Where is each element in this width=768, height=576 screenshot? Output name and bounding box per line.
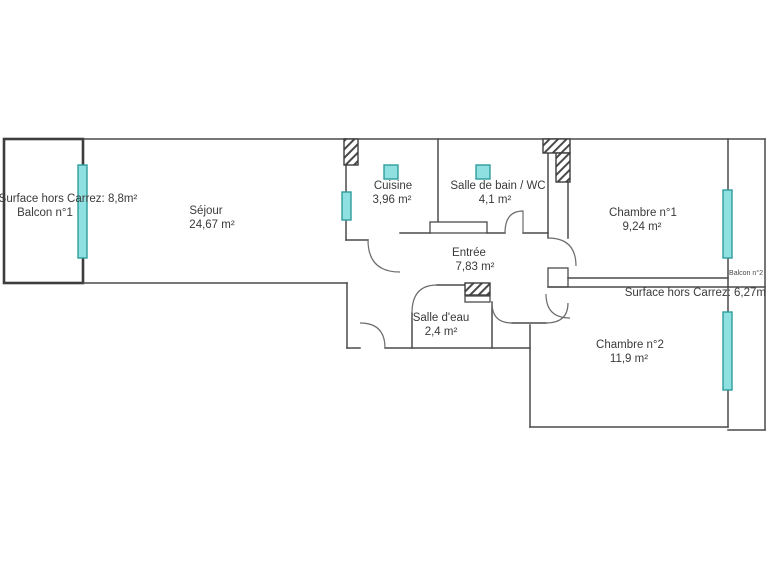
corridor-corner-arc-right: [546, 303, 568, 323]
room-area-entree: 7,83 m²: [456, 261, 495, 273]
room-area-chambre2: 11,9 m²: [610, 353, 648, 365]
duct-hatch-bath-side: [556, 153, 570, 182]
room-label-entree: Entrée: [452, 247, 486, 259]
balcon1-label: Balcon n°1: [17, 207, 73, 219]
room-area-salle-de-bain: 4,1 m²: [479, 194, 512, 206]
room-area-salle-deau: 2,4 m²: [425, 326, 458, 338]
window-chambre2-icon: [723, 312, 732, 390]
window-chambre1-icon: [723, 190, 732, 258]
window-cuisine-icon: [342, 192, 351, 220]
room-area-chambre1: 9,24 m²: [623, 221, 662, 233]
room-label-chambre2: Chambre n°2: [596, 339, 664, 351]
room-area-sejour: 24,67 m²: [189, 219, 235, 231]
balcon2-surface-label: Surface hors Carrez: 6,27m: [625, 287, 766, 299]
room-label-chambre1: Chambre n°1: [609, 207, 677, 219]
balcon1-surface-label: Surface hors Carrez: 8,8m²: [0, 193, 138, 205]
balcon2-label: Balcon n°2: [729, 269, 763, 277]
door-arc-salle-deau: [412, 285, 437, 313]
room-label-sejour: Séjour: [189, 205, 222, 217]
corridor-corner-arc-left: [492, 303, 512, 323]
floor-plan-page: Surface hors Carrez: 8,8m² Balcon n°1 Sé…: [0, 0, 768, 576]
room-label-cuisine: Cuisine: [374, 180, 412, 192]
door-arc-entry: [360, 323, 385, 348]
door-arc-salle-de-bain: [505, 211, 523, 233]
room-label-salle-de-bain: Salle de bain / WC: [450, 180, 545, 192]
floor-plan-canvas: Surface hors Carrez: 8,8m² Balcon n°1 Sé…: [0, 0, 768, 576]
duct-hatch-entree: [465, 283, 490, 295]
window-balcon1-icon: [78, 165, 87, 258]
door-arc-cuisine: [368, 240, 400, 272]
fixture-salle-de-bain-icon: [476, 165, 490, 179]
fixture-cuisine-icon: [384, 165, 398, 179]
duct-ledge-entree: [465, 296, 490, 302]
door-arc-chambre1: [548, 238, 576, 266]
room-label-salle-deau: Salle d'eau: [413, 312, 470, 324]
room-area-cuisine: 3,96 m²: [373, 194, 412, 206]
duct-hatch-cuisine: [344, 139, 358, 165]
duct-hatch-bath-top: [543, 139, 570, 153]
ducts: [344, 139, 570, 302]
door-arc-chambre2: [546, 294, 570, 318]
